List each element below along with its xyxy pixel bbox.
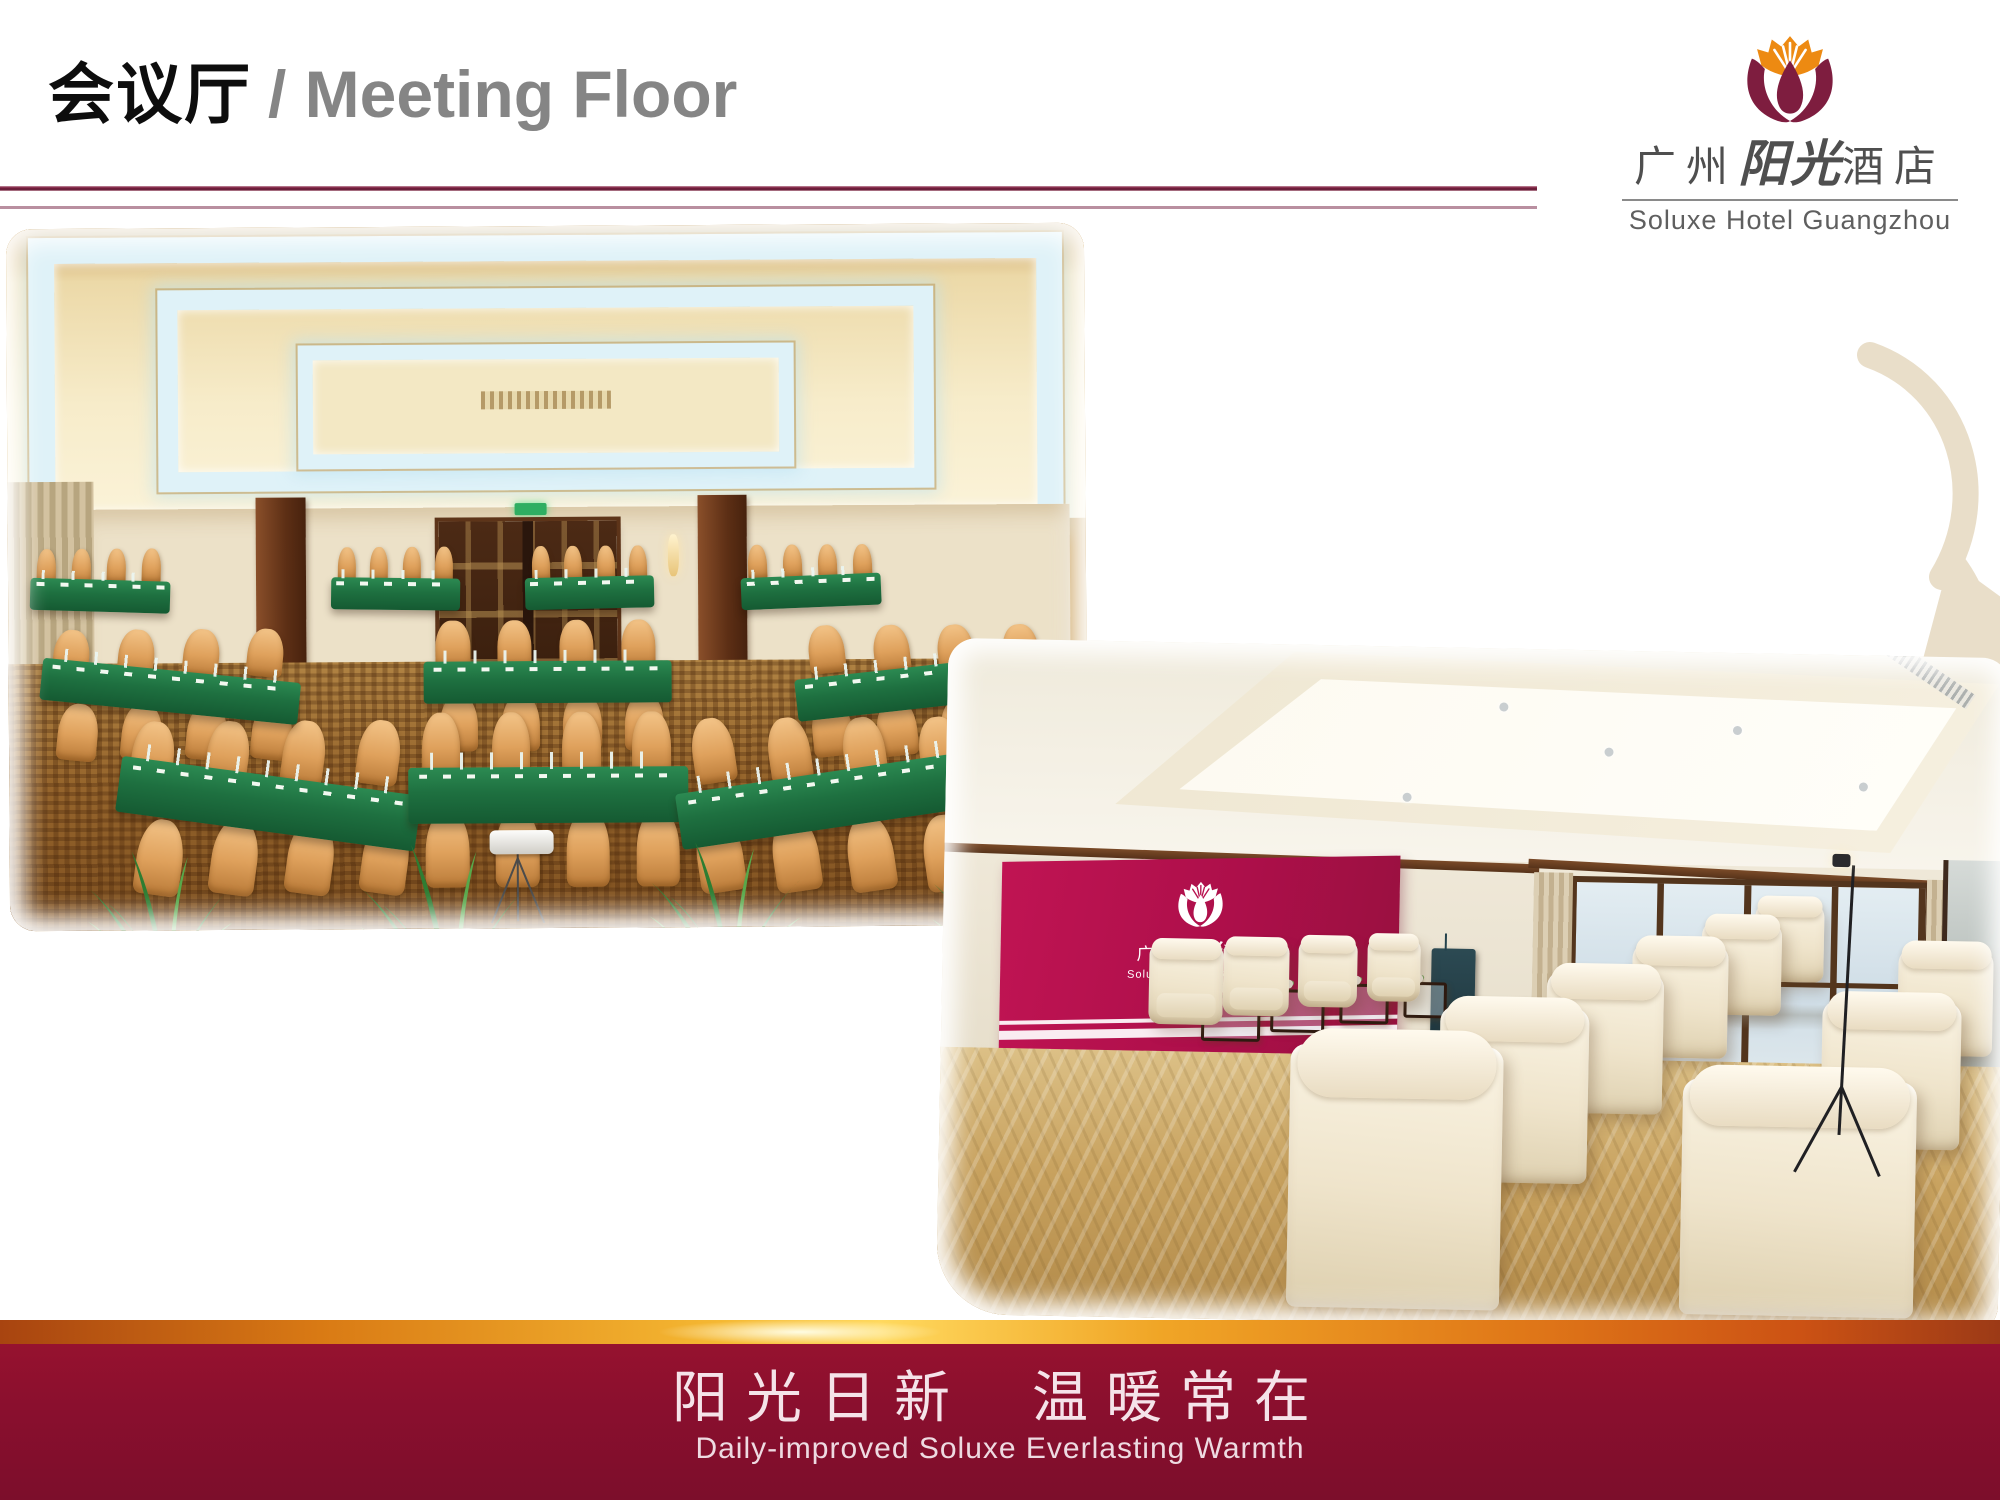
footer-slogan-zh: 阳光日新温暖常在 xyxy=(0,1366,2000,1430)
meeting-table xyxy=(29,578,170,614)
hotel-name-zh-prefix: 广州 xyxy=(1634,143,1738,190)
plant xyxy=(74,845,245,931)
armchair xyxy=(1366,937,1420,1002)
meeting-room-scene xyxy=(6,223,1088,932)
photo-meeting-room xyxy=(6,223,1088,932)
page-title-zh: 会议厅 xyxy=(48,57,252,131)
photo-vip-lounge: 广州阳光酒店 Soluxe Hotel Guangzhou xyxy=(936,638,2000,1334)
plant xyxy=(344,837,545,931)
header-divider-thick xyxy=(0,186,1537,191)
meeting-table xyxy=(525,575,655,610)
slide: 会议厅/ Meeting Floor 广州阳光酒店 Soluxe Hotel G… xyxy=(0,0,2000,1500)
meeting-table xyxy=(741,573,882,610)
page-title-en: / Meeting Floor xyxy=(268,57,737,131)
hotel-name-zh: 广州阳光酒店 xyxy=(1590,138,1990,191)
armchair xyxy=(1679,1078,1917,1319)
hotel-name-zh-script: 阳光 xyxy=(1738,134,1842,193)
meeting-table xyxy=(408,766,689,824)
spotlight xyxy=(1832,854,1850,867)
hotel-name-zh-suffix: 酒店 xyxy=(1842,143,1946,190)
vip-lounge-scene: 广州阳光酒店 Soluxe Hotel Guangzhou xyxy=(936,638,2000,1334)
ceiling xyxy=(6,223,1086,524)
header-divider-thin xyxy=(0,206,1537,209)
meeting-table xyxy=(424,660,672,704)
tulip-sunburst-icon xyxy=(1738,34,1842,130)
wall-lamp xyxy=(667,534,678,576)
page-title: 会议厅/ Meeting Floor xyxy=(48,58,737,131)
armchair xyxy=(1286,1043,1503,1311)
meeting-table xyxy=(331,577,461,610)
plant xyxy=(635,835,816,931)
tulip-sunburst-icon xyxy=(1174,881,1229,932)
armchair xyxy=(1148,943,1224,1026)
footer-gold-bar xyxy=(0,1320,2000,1344)
hotel-name-en: Soluxe Hotel Guangzhou xyxy=(1590,205,1990,236)
hotel-logo-divider xyxy=(1622,199,1958,201)
exit-sign xyxy=(514,503,546,514)
armchair xyxy=(1223,941,1290,1017)
hotel-logo: 广州阳光酒店 Soluxe Hotel Guangzhou xyxy=(1590,20,1990,255)
footer: 阳光日新温暖常在 Daily-improved Soluxe Everlasti… xyxy=(0,1344,2000,1500)
armchair xyxy=(1297,939,1358,1008)
footer-slogan-en: Daily-improved Soluxe Everlasting Warmth xyxy=(0,1432,2000,1466)
